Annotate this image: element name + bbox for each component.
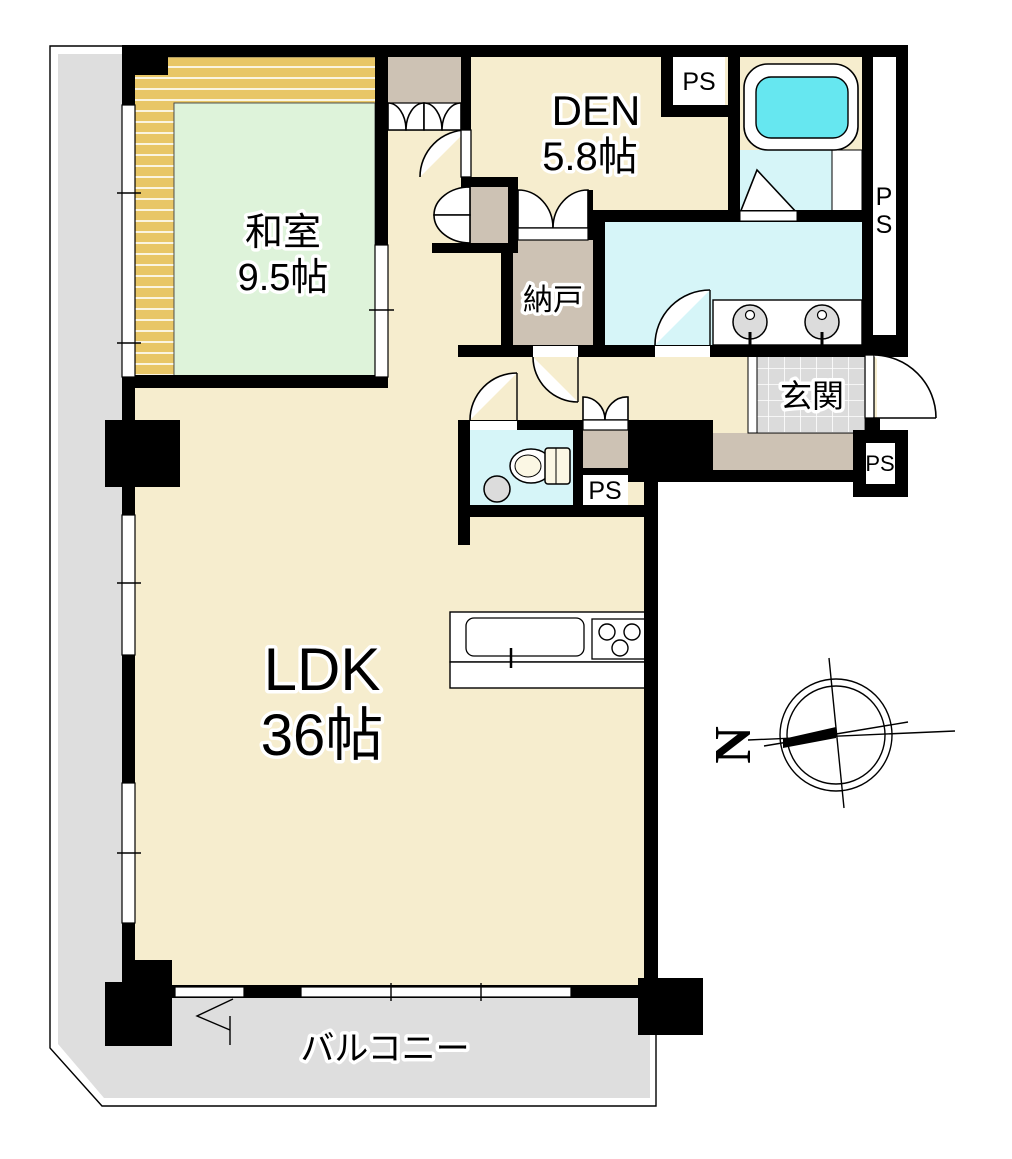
wall-left-3 [122,487,135,515]
wall-bath-right [862,45,873,347]
label-ps-bottom-right: PS [865,451,894,476]
label-ps-right-p: P [876,183,893,211]
bathtub-water [756,77,848,138]
label-balcony: バルコニー [300,1030,469,1068]
floor-plan-drawing: N 和室 9.5帖 DEN 5.8帖 納戸 玄関 LDK 36帖 バルコニー P… [0,0,1012,1159]
window-washitsu-left [122,105,135,377]
closet-hall-mid [583,430,628,470]
wall-washitsu-bottom [122,375,388,388]
toilet-hand-basin [484,476,510,502]
kitchen-stove [592,619,646,659]
compass-north-label: N [705,726,762,764]
wall-bath-left [728,45,740,212]
kitchen-sink [466,618,584,656]
wall-ps-top-bottom [661,105,738,117]
corridor-strip [713,433,853,470]
label-den-size: 5.8帖 [542,135,638,179]
wall-outer-right [896,45,908,347]
wall-corridor-bottom [713,470,858,482]
bath-door-sill [740,211,797,221]
label-genkan: 玄関 [780,378,844,414]
wall-left-4 [122,655,135,783]
wall-washitsu-right [375,45,388,245]
pillar-left-mid [105,420,180,487]
wall-left-2 [122,377,135,420]
closet-hall-top [388,57,461,103]
genkan-step [748,355,757,433]
wall-toilet-left [458,430,470,545]
wall-hall-block [628,420,713,482]
wall-stub-nando-left [508,177,518,253]
label-ldk-name: LDK [264,636,381,703]
label-ps-right-s: S [876,211,893,239]
window-ldk-left-1 [122,515,135,655]
label-ldk-size: 36帖 [261,703,384,768]
sliding-door-washitsu-ldk [375,245,388,377]
compass: N [705,658,955,808]
wall-den-corridor [461,45,471,130]
label-nando: 納戸 [523,284,583,317]
wall-ps-mid-separator [583,468,628,475]
bathroom-counter [832,150,862,213]
window-balcony-1 [175,987,244,997]
wall-ldk-right [644,470,658,978]
compass-north-bar [783,727,836,748]
wall-left-1 [122,57,135,105]
wall-toilet-bottom [458,505,648,517]
wall-nando-left [501,253,513,345]
label-den-name: DEN [552,87,641,134]
wall-top [122,45,908,57]
wall-toilet-right [573,430,583,505]
compass-pointer-line [748,731,955,740]
floor-plan-canvas: N 和室 9.5帖 DEN 5.8帖 納戸 玄関 LDK 36帖 バルコニー P… [0,0,1012,1159]
label-washitsu-size: 9.5帖 [238,257,329,299]
kitchen-counter [450,612,648,688]
window-balcony-2 [301,987,571,997]
label-washitsu-name: 和室 [245,212,321,254]
wall-nando-right [593,210,605,345]
toilet [510,448,570,484]
closet-corridor [470,187,508,243]
accordion-closet-door [388,103,461,130]
label-ps-top: PS [682,68,715,96]
label-ps-mid: PS [588,477,621,505]
wall-closet-bottom [432,243,518,253]
